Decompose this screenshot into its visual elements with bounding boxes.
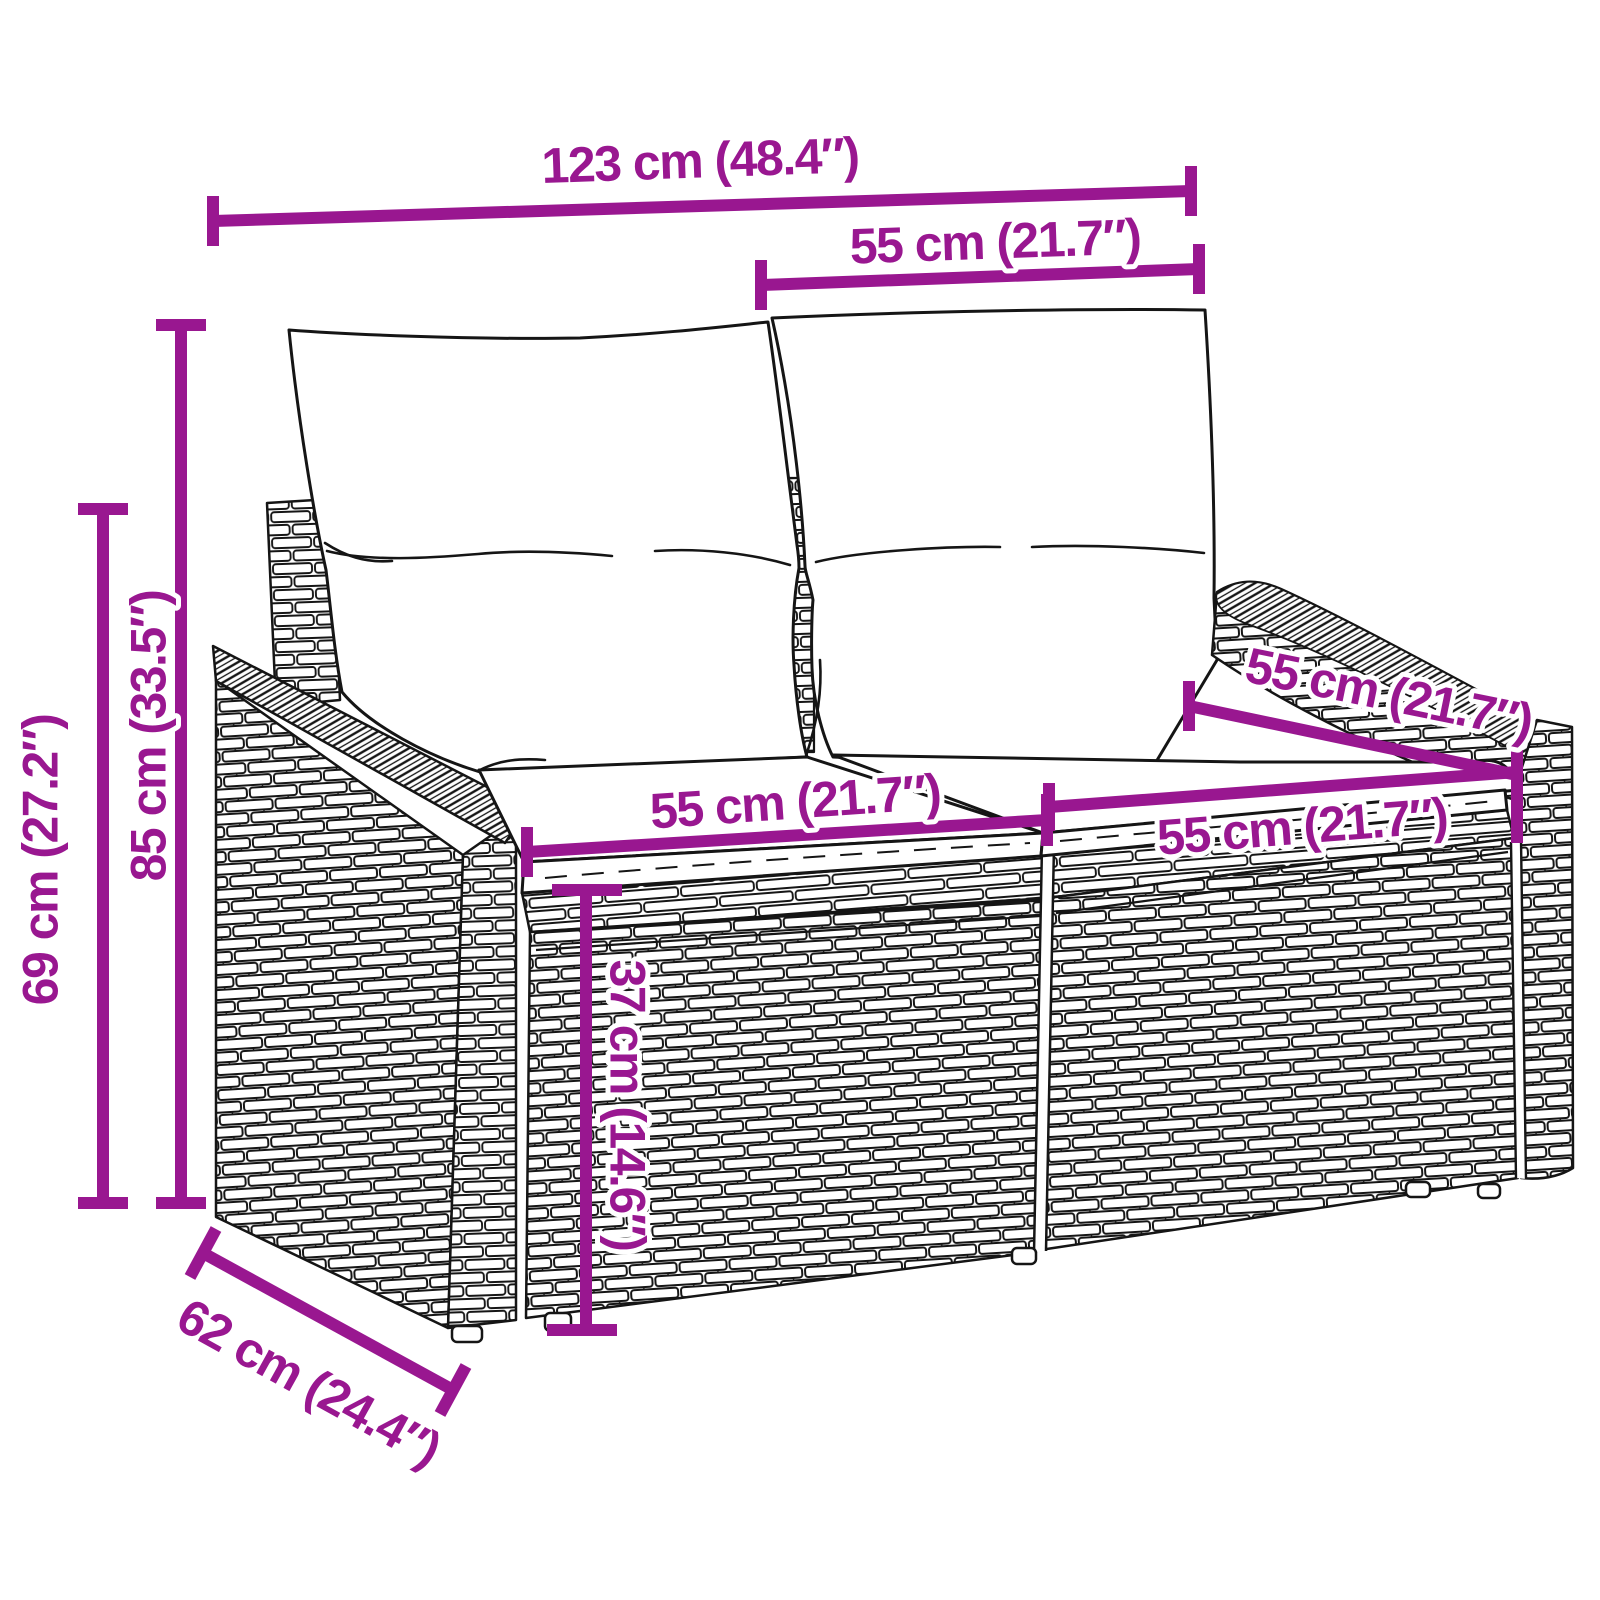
svg-text:123 cm (48.4″): 123 cm (48.4″) [541,127,860,194]
svg-text:37 cm (14.6″): 37 cm (14.6″) [600,960,656,1251]
svg-text:55 cm (21.7″): 55 cm (21.7″) [849,208,1142,274]
svg-text:69 cm (27.2″): 69 cm (27.2″) [13,715,69,1006]
svg-text:85 cm (33.5″): 85 cm (33.5″) [121,591,177,882]
